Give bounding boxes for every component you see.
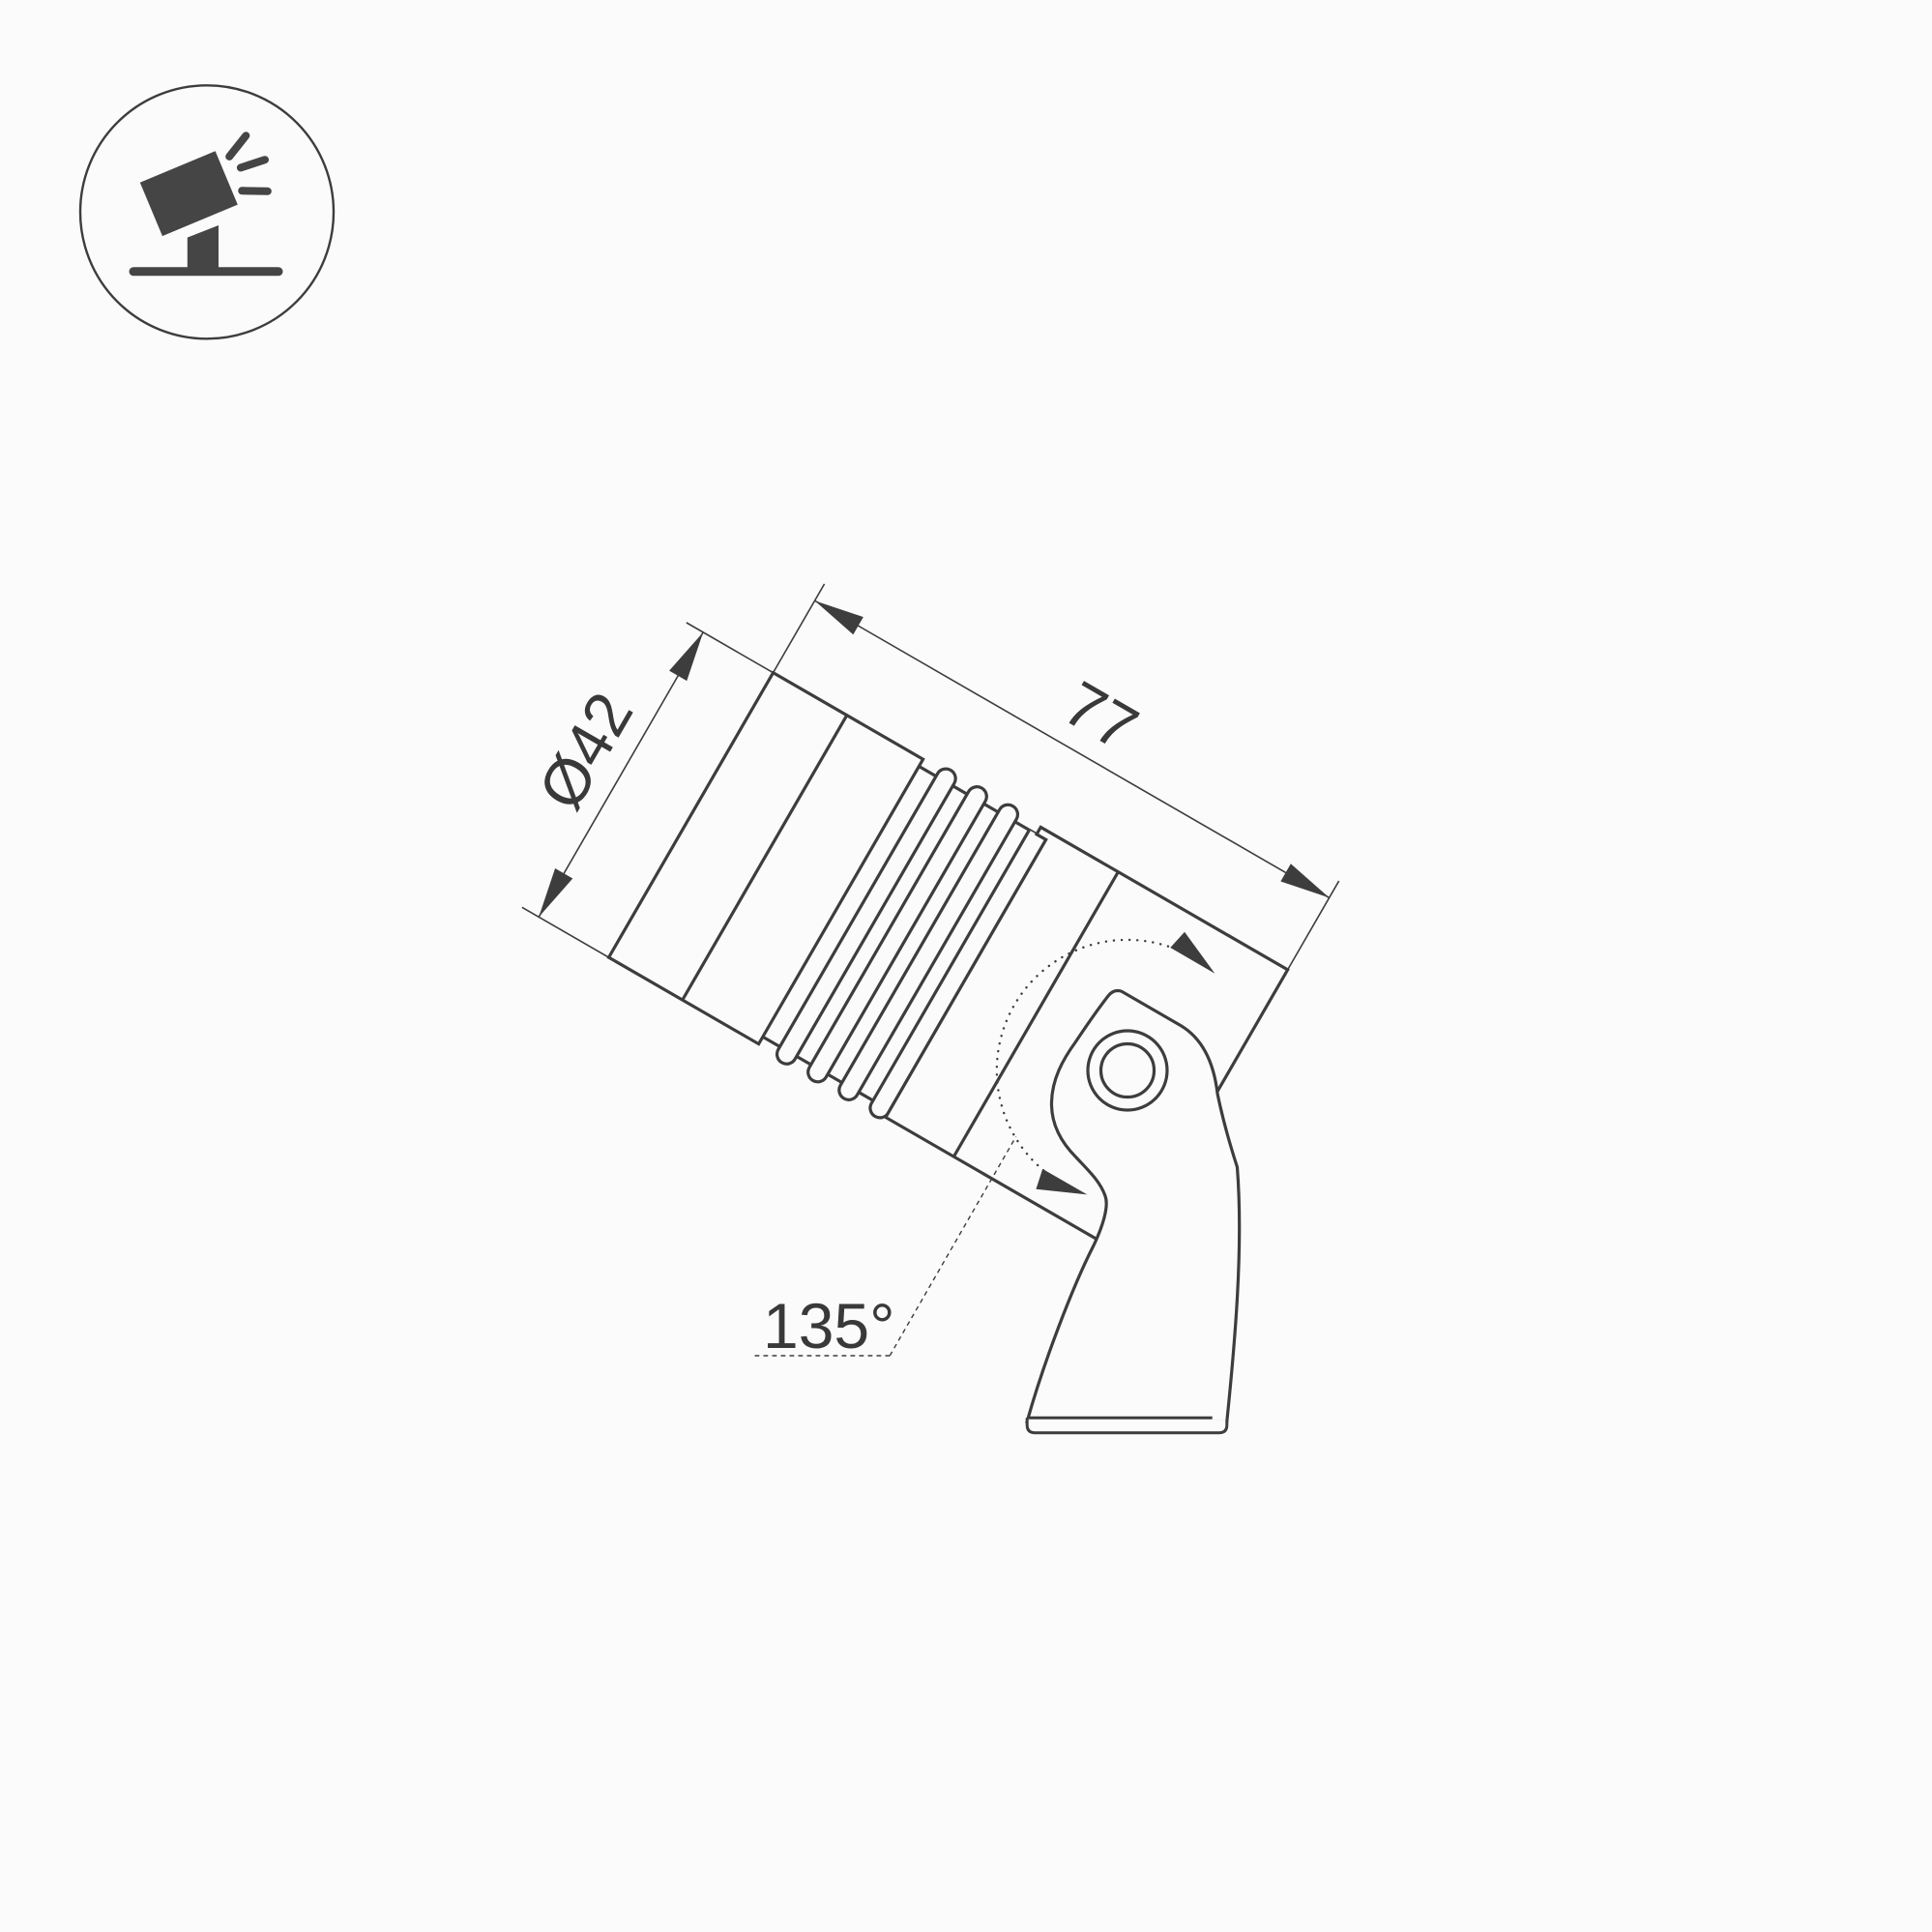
svg-text:135°: 135° [763,1290,895,1361]
